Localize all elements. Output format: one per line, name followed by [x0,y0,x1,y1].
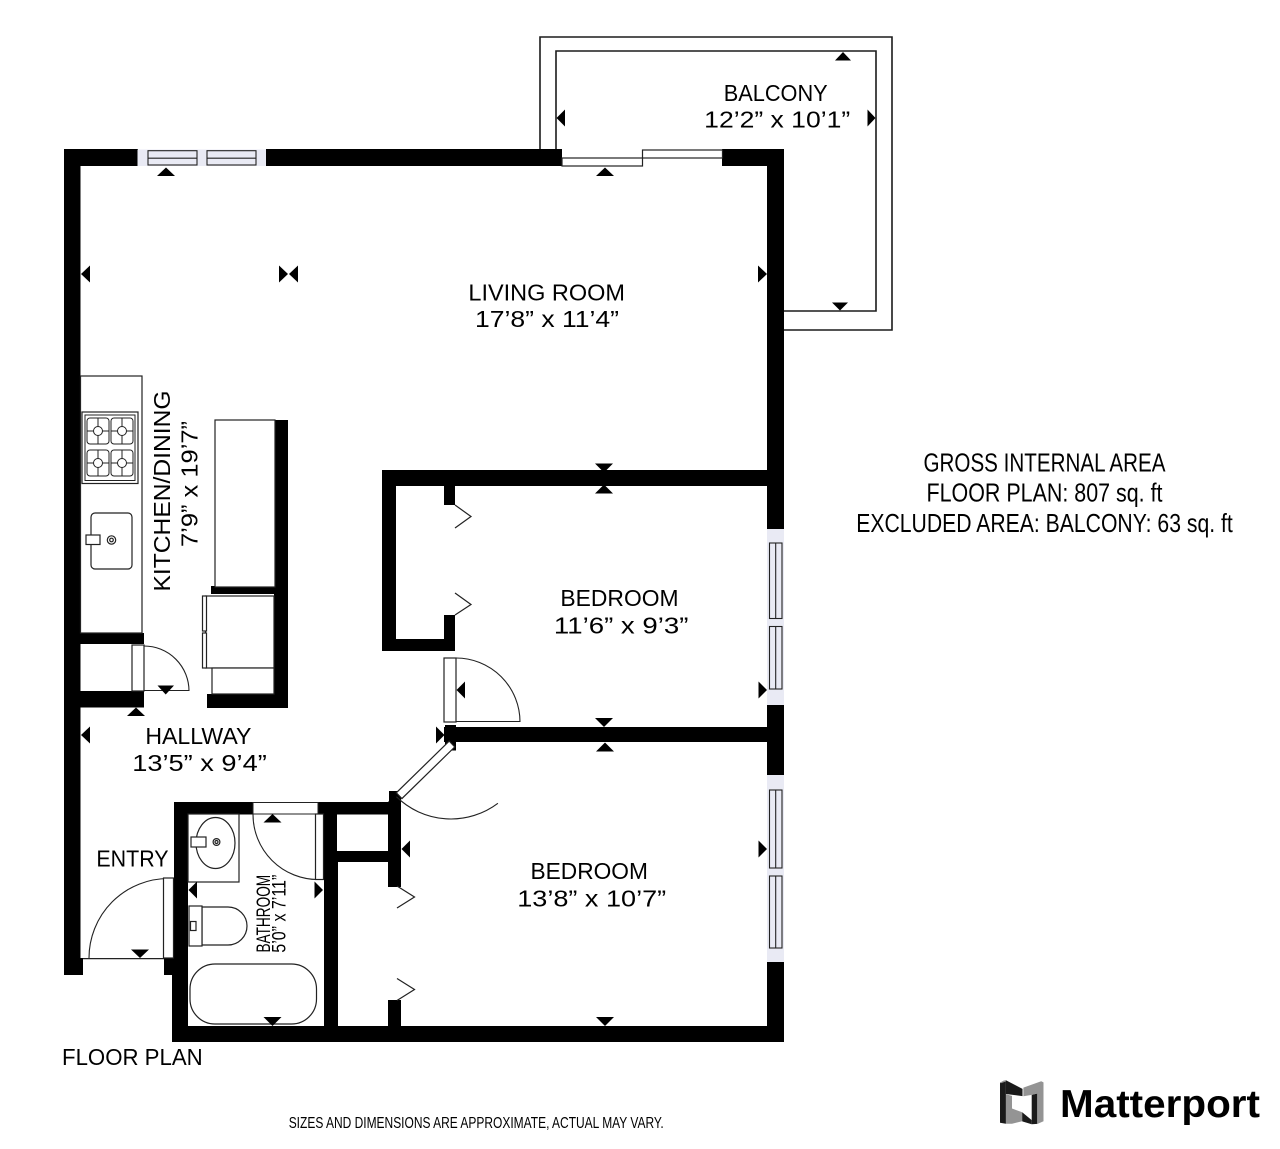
svg-text:SIZES AND DIMENSIONS ARE APPRO: SIZES AND DIMENSIONS ARE APPROXIMATE, AC… [289,1115,664,1132]
svg-text:11’6” x 9’3”: 11’6” x 9’3” [554,613,689,639]
svg-text:5’0” x 7’11”: 5’0” x 7’11” [268,875,290,953]
svg-text:LIVING ROOM: LIVING ROOM [468,279,625,305]
svg-text:17’8” x 11’4”: 17’8” x 11’4” [475,306,619,332]
svg-text:GROSS INTERNAL AREA: GROSS INTERNAL AREA [924,448,1167,478]
svg-text:HALLWAY: HALLWAY [145,723,251,749]
svg-text:BEDROOM: BEDROOM [531,858,648,884]
svg-text:13’5” x 9’4”: 13’5” x 9’4” [132,750,267,776]
svg-text:FLOOR PLAN: 807 sq. ft: FLOOR PLAN: 807 sq. ft [927,478,1164,508]
svg-text:EXCLUDED AREA: BALCONY: 63 sq.: EXCLUDED AREA: BALCONY: 63 sq. ft [856,508,1233,538]
svg-text:FLOOR PLAN: FLOOR PLAN [62,1044,203,1070]
svg-text:12’2” x 10’1”: 12’2” x 10’1” [704,106,850,132]
svg-text:BALCONY: BALCONY [724,80,828,106]
svg-text:7’9” x 19’7”: 7’9” x 19’7” [177,421,203,547]
svg-text:Matterport: Matterport [1060,1083,1260,1126]
svg-text:ENTRY: ENTRY [96,845,168,871]
svg-text:KITCHEN/DINING: KITCHEN/DINING [149,391,175,592]
svg-text:BEDROOM: BEDROOM [560,585,678,611]
svg-text:13’8” x 10’7”: 13’8” x 10’7” [517,886,666,912]
